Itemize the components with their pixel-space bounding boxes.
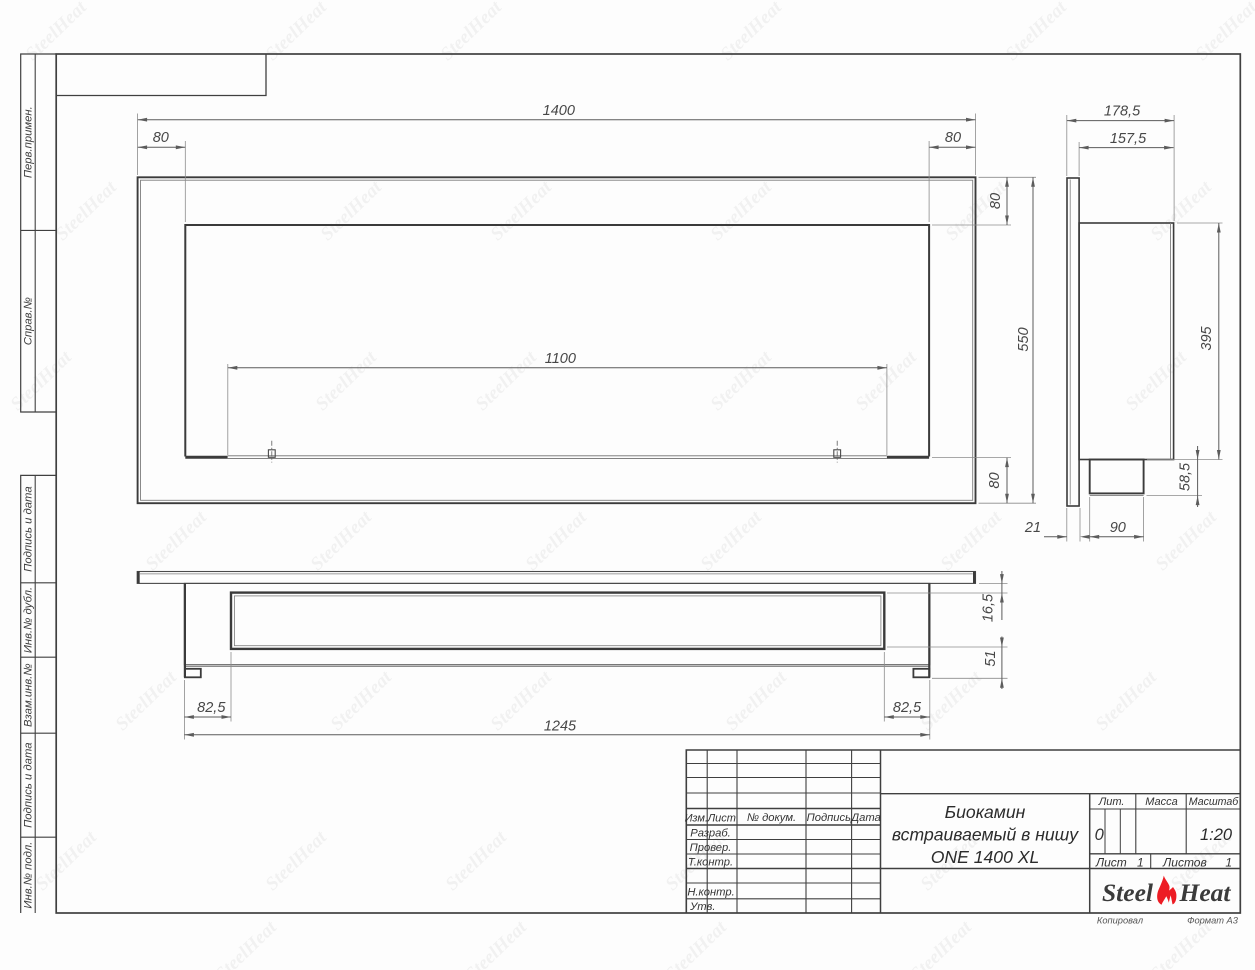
svg-text:58,5: 58,5 [1178, 462, 1194, 491]
svg-text:80: 80 [153, 130, 169, 146]
svg-text:178,5: 178,5 [1104, 104, 1141, 120]
svg-text:ONE 1400 XL: ONE 1400 XL [931, 847, 1040, 867]
svg-text:16,5: 16,5 [981, 593, 997, 622]
svg-text:Масса: Масса [1145, 796, 1178, 808]
svg-text:Н.контр.: Н.контр. [687, 887, 734, 899]
svg-text:157,5: 157,5 [1110, 131, 1147, 147]
svg-text:1245: 1245 [544, 719, 577, 735]
svg-text:1:20: 1:20 [1200, 826, 1233, 844]
svg-text:82,5: 82,5 [197, 700, 226, 716]
svg-text:Лист: Лист [1095, 855, 1127, 869]
svg-text:80: 80 [945, 130, 961, 146]
svg-text:1400: 1400 [543, 103, 575, 119]
svg-text:80: 80 [988, 193, 1004, 209]
svg-text:1: 1 [1225, 855, 1232, 869]
svg-text:Инв.№ подл.: Инв.№ подл. [23, 842, 35, 909]
svg-text:Steel: Steel [1102, 878, 1154, 907]
svg-text:Справ.№: Справ.№ [23, 297, 35, 345]
svg-text:395: 395 [1199, 325, 1215, 350]
svg-text:80: 80 [987, 472, 1003, 488]
svg-text:Разраб.: Разраб. [690, 827, 730, 839]
svg-text:Подпись и дата: Подпись и дата [23, 742, 35, 827]
svg-text:Формат А3: Формат А3 [1187, 916, 1239, 926]
svg-text:1100: 1100 [545, 351, 576, 367]
svg-text:Дата: Дата [849, 812, 881, 824]
svg-text:0: 0 [1095, 826, 1105, 844]
svg-text:Лист: Лист [707, 812, 736, 824]
svg-text:Масштаб: Масштаб [1189, 796, 1240, 808]
svg-text:82,5: 82,5 [893, 700, 922, 716]
svg-text:Лит.: Лит. [1098, 796, 1125, 808]
svg-text:Подпись и дата: Подпись и дата [23, 486, 35, 571]
svg-text:Heat: Heat [1179, 878, 1232, 907]
svg-text:Изм.: Изм. [685, 812, 708, 824]
svg-text:550: 550 [1016, 327, 1032, 351]
svg-text:Копировал: Копировал [1097, 916, 1144, 926]
svg-text:Подпись: Подпись [807, 812, 851, 824]
svg-text:51: 51 [983, 650, 999, 666]
svg-text:21: 21 [1024, 520, 1041, 536]
svg-text:Утв.: Утв. [689, 901, 715, 913]
svg-text:Т.контр.: Т.контр. [688, 856, 733, 868]
svg-text:Взам.инв.№: Взам.инв.№ [23, 663, 35, 727]
svg-text:Инв.№ дубл.: Инв.№ дубл. [23, 587, 35, 653]
svg-text:встраиваемый в нишу: встраиваемый в нишу [892, 824, 1079, 844]
svg-text:90: 90 [1110, 520, 1126, 536]
svg-text:1: 1 [1137, 855, 1144, 869]
svg-text:Провер.: Провер. [690, 842, 732, 854]
svg-text:Перв.примен.: Перв.примен. [23, 106, 35, 178]
svg-text:Листов: Листов [1162, 855, 1207, 869]
svg-text:Биокамин: Биокамин [945, 802, 1026, 822]
svg-text:№ докум.: № докум. [747, 812, 796, 824]
